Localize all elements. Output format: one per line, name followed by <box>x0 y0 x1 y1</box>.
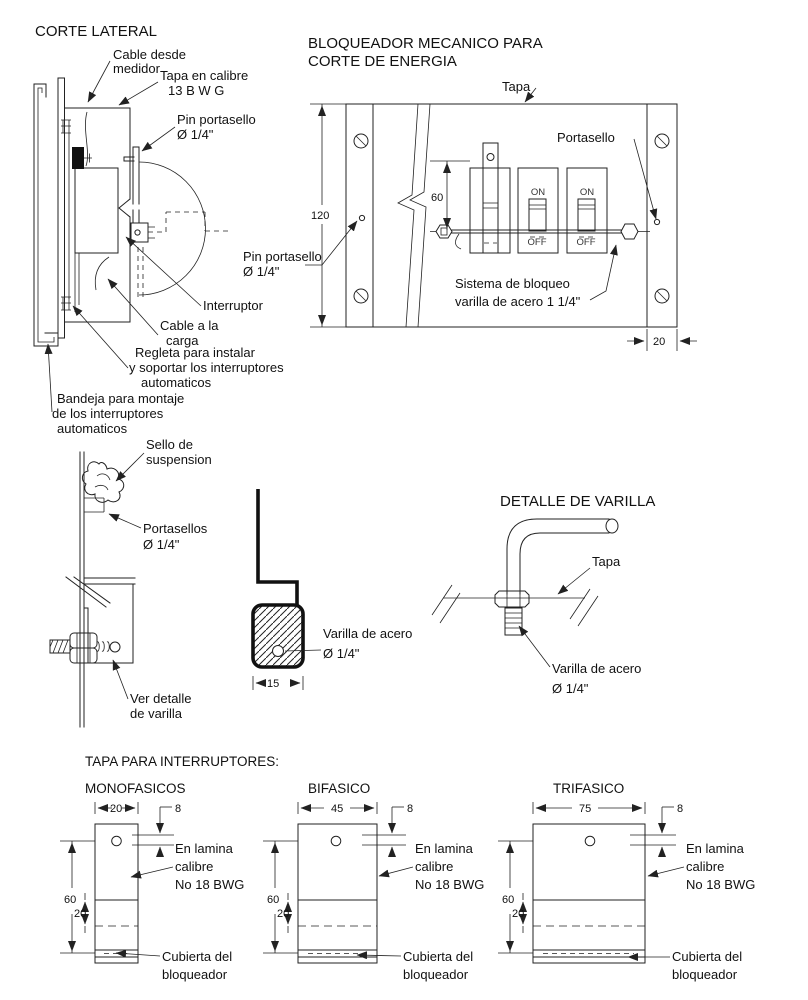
leader-lamina <box>648 867 684 876</box>
bolt-top <box>61 120 71 133</box>
detalle-varilla-section: DETALLE DE VARILLA Tapa Varilla de acero… <box>432 493 655 696</box>
breaker-1 <box>455 143 510 253</box>
variant-title-bif: BIFASICO <box>308 781 370 796</box>
seccion-varilla: 15 Varilla de acero Ø 1/4" <box>253 489 412 690</box>
leader-regleta <box>73 306 128 368</box>
detalle-varilla-title: DETALLE DE VARILLA <box>500 493 655 510</box>
dim15-text: 15 <box>267 678 279 690</box>
leader-cable-carga <box>108 279 158 335</box>
label-cable-carga-1: Cable a la <box>160 318 219 333</box>
thread-lines <box>505 613 522 628</box>
corte-lateral-title: CORTE LATERAL <box>35 23 157 40</box>
breaker3-on: ON <box>580 187 594 198</box>
label-lamina-3: No 18 BWG <box>175 877 244 892</box>
label-regleta-3: automaticos <box>141 375 212 390</box>
label-bandeja-1: Bandeja para montaje <box>57 391 184 406</box>
tapa-hole <box>585 836 595 846</box>
label-varilla-detalle-2: Ø 1/4" <box>552 681 589 696</box>
label-varilla-seccion-2: Ø 1/4" <box>323 646 360 661</box>
label-ver-detalle-1: Ver detalle <box>130 691 191 706</box>
interruptor-tabs <box>148 227 155 238</box>
cover-notch <box>119 199 130 217</box>
label-sistema-1: Sistema de bloqueo <box>455 276 570 291</box>
break-right <box>570 589 598 626</box>
leader-pin-portasello-top <box>142 127 175 151</box>
label-lamina-2: calibre <box>415 859 453 874</box>
leader-tapa-calibre <box>119 82 158 105</box>
bloqueador-section: BLOQUEADOR MECANICO PARA CORTE DE ENERGI… <box>308 35 697 351</box>
tapa-monofasico: 20 8 60 20 En lamina calibre No 18 BWG C… <box>60 802 244 982</box>
panel-frame-inner-line <box>38 88 54 342</box>
label-tapa-calibre-1: Tapa en calibre <box>160 68 248 83</box>
hidden-cable-path <box>148 212 228 232</box>
label-cable-desde-2: medidor <box>113 61 161 76</box>
leader-portasello-panel <box>634 139 656 219</box>
left-pin <box>359 215 364 220</box>
label-lamina-1: En lamina <box>686 841 745 856</box>
hidden-lines-below <box>138 247 143 298</box>
seal-wire-detail <box>95 474 110 490</box>
rod-hex-left <box>436 225 452 238</box>
label-portasellos-1: Portasellos <box>143 521 208 536</box>
label-lamina-3: No 18 BWG <box>686 877 755 892</box>
sello-section: Sello de suspension Portasellos Ø 1/4" V… <box>50 437 212 727</box>
label-cubierta-2: bloqueador <box>403 967 469 982</box>
dim8-text: 8 <box>677 803 683 815</box>
dim8-text: 8 <box>175 803 181 815</box>
breaker2-off: OFF <box>528 237 547 248</box>
tapa-bifasico: 45 8 60 20 En lamina calibre No 18 BWG C… <box>263 802 484 982</box>
drawing-canvas: CORTE LATERAL Cable <box>0 0 808 1000</box>
dim60-text: 60 <box>64 894 76 906</box>
hex-nut <box>495 591 529 607</box>
right-pin <box>654 219 659 224</box>
breaker-2: ON OFF <box>518 168 558 253</box>
leader-sello <box>116 453 144 481</box>
leader-ver-detalle <box>113 660 128 699</box>
connector-block <box>72 147 84 169</box>
label-sistema-2: varilla de acero 1 1/4" <box>455 294 581 309</box>
label-lamina-1: En lamina <box>415 841 474 856</box>
breaker3-off: OFF <box>577 237 596 248</box>
inner-box-lower-lines <box>75 253 79 312</box>
label-tapa-detalle: Tapa <box>592 554 621 569</box>
corte-lateral-section: CORTE LATERAL Cable <box>34 23 357 436</box>
dim20-text: 20 <box>653 336 665 348</box>
label-bandeja-3: automaticos <box>57 421 128 436</box>
tapas-section: TAPA PARA INTERRUPTORES: MONOFASICOS BIF… <box>60 754 755 982</box>
label-regleta-1: Regleta para instalar <box>135 345 256 360</box>
dim60-text: 60 <box>502 894 514 906</box>
label-interruptor: Interruptor <box>203 298 264 313</box>
dim120-text: 120 <box>311 210 329 222</box>
break-line-2 <box>410 104 430 327</box>
threaded-section <box>505 608 522 635</box>
cable-to-load-curve <box>95 257 109 290</box>
dimw-text: 45 <box>331 803 343 815</box>
variant-title-mono: MONOFASICOS <box>85 781 186 796</box>
leader-cable-desde <box>88 61 110 102</box>
label-lamina-2: calibre <box>686 859 724 874</box>
cover-swing-arc <box>139 162 206 295</box>
label-tapa-calibre-2: 13 B W G <box>168 83 224 98</box>
bolt-bottom <box>61 297 71 310</box>
thread-hatch <box>50 640 68 653</box>
label-cubierta-1: Cubierta del <box>162 949 232 964</box>
label-pin-portasello-right-2: Ø 1/4" <box>243 264 280 279</box>
rod-hex-right <box>621 224 638 239</box>
inner-box <box>75 168 118 253</box>
label-cubierta-1: Cubierta del <box>403 949 473 964</box>
label-varilla-detalle-1: Varilla de acero <box>552 661 641 676</box>
cover-section-profile <box>258 489 297 606</box>
label-bandeja-2: de los interruptores <box>52 406 164 421</box>
label-lamina-3: No 18 BWG <box>415 877 484 892</box>
rod-end-circle <box>110 642 120 652</box>
rod-hex-left-inner <box>441 228 447 235</box>
rod-hole <box>273 646 284 657</box>
dim20-text: 20 <box>74 908 86 920</box>
label-tapa-panel: Tapa <box>502 79 531 94</box>
tapas-title: TAPA PARA INTERRUPTORES: <box>85 754 279 769</box>
label-portasello-panel: Portasello <box>557 130 615 145</box>
label-lamina-2: calibre <box>175 859 213 874</box>
bloqueador-title-1: BLOQUEADOR MECANICO PARA <box>308 35 543 52</box>
tapa-trifasico: 75 8 60 20 En lamina calibre No 18 BWG C… <box>498 802 755 982</box>
dim8-text: 8 <box>407 803 413 815</box>
connector-pin <box>84 154 92 163</box>
leader-lamina <box>131 867 173 877</box>
label-cubierta-2: bloqueador <box>672 967 738 982</box>
hex-nut-facets <box>507 591 520 607</box>
label-sello-1: Sello de <box>146 437 193 452</box>
leader-bandeja <box>48 344 52 412</box>
dim8-ext <box>362 835 406 845</box>
label-sello-2: suspension <box>146 452 212 467</box>
bloqueador-title-2: CORTE DE ENERGIA <box>308 53 457 70</box>
door-panel <box>58 78 65 338</box>
leader-tapa-detalle <box>558 568 590 594</box>
seal-bracket <box>84 498 104 512</box>
tapa-hole <box>331 836 341 846</box>
rod-end-rings <box>97 642 109 651</box>
breaker2-on: ON <box>531 187 545 198</box>
break-left <box>432 585 460 623</box>
label-portasellos-2: Ø 1/4" <box>143 537 180 552</box>
shelf-lines <box>84 578 135 584</box>
leader-varilla-detalle <box>519 626 550 667</box>
label-lamina-1: En lamina <box>175 841 234 856</box>
dim60-text: 60 <box>431 192 443 204</box>
label-ver-detalle-2: de varilla <box>130 706 183 721</box>
label-pin-portasello-top-2: Ø 1/4" <box>177 127 214 142</box>
dim60-text: 60 <box>267 894 279 906</box>
label-pin-portasello-top-1: Pin portasello <box>177 112 256 127</box>
dimw-text: 20 <box>110 803 122 815</box>
dim20-text: 20 <box>277 908 289 920</box>
tapa-body <box>533 824 645 963</box>
cover-outline <box>65 108 131 322</box>
break-line-1 <box>398 104 418 327</box>
label-varilla-seccion-1: Varilla de acero <box>323 626 412 641</box>
dim20-text: 20 <box>512 908 524 920</box>
label-cubierta-1: Cubierta del <box>672 949 742 964</box>
label-regleta-2: y soportar los interruptores <box>129 360 284 375</box>
pin-strip <box>133 147 139 223</box>
leader-lamina <box>379 867 413 876</box>
diagonal-brace <box>66 577 110 607</box>
label-pin-portasello-right-1: Pin portasello <box>243 249 322 264</box>
bloqueador-section-block <box>253 605 303 667</box>
interruptor-hole <box>135 230 140 235</box>
leader-cubierta <box>357 955 401 956</box>
breaker-3: ON OFF <box>567 168 607 253</box>
rod-end <box>606 519 618 533</box>
label-cable-desde-1: Cable desde <box>113 47 186 62</box>
tapa-body <box>95 824 138 963</box>
technical-drawing-page: CORTE LATERAL Cable <box>0 0 808 1000</box>
interruptor-box <box>131 223 148 242</box>
dim8-ext <box>630 835 676 845</box>
dimw-text: 75 <box>579 803 591 815</box>
label-cubierta-2: bloqueador <box>162 967 228 982</box>
suspension-seal-blob <box>82 462 123 502</box>
variant-title-tri: TRIFASICO <box>553 781 624 796</box>
leader-portasellos <box>109 514 141 528</box>
tapa-hole <box>112 836 122 846</box>
